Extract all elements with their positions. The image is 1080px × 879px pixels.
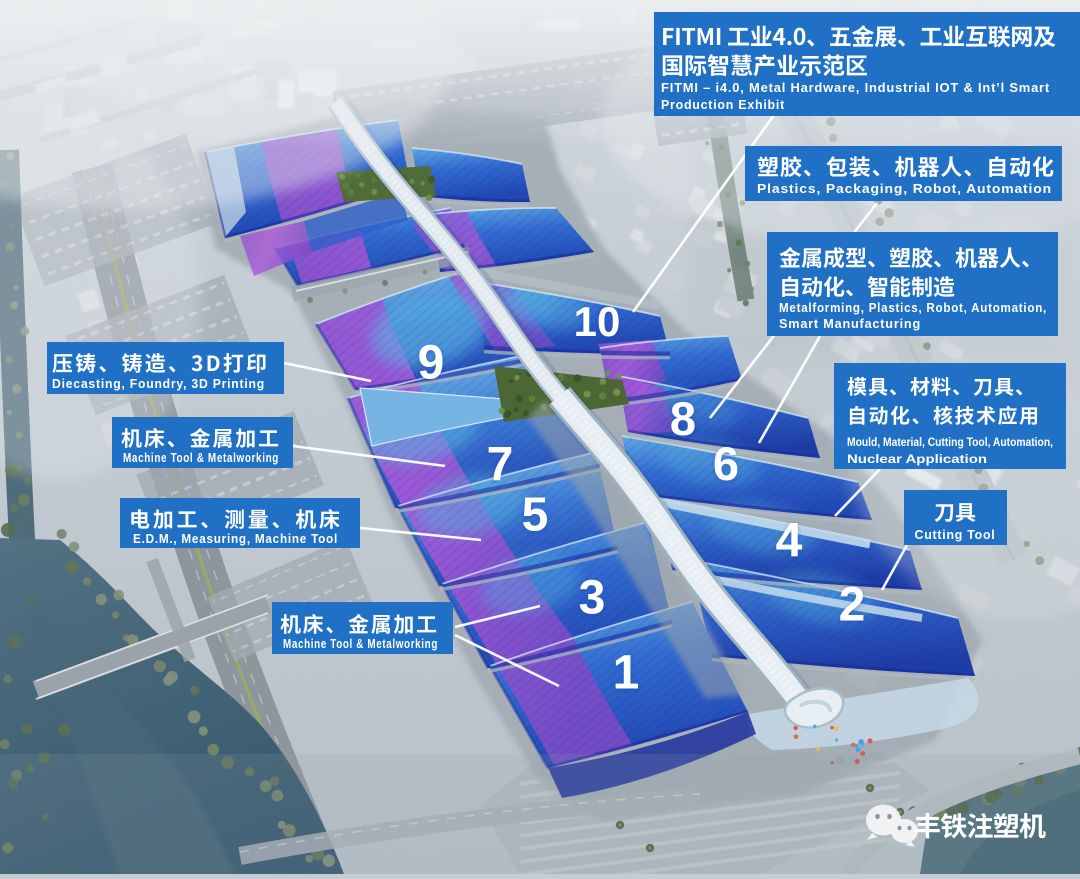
svg-text:FITMI – i4.0, Metal Hardware,: FITMI – i4.0, Metal Hardware, Industrial… (661, 80, 1050, 95)
svg-text:Smart Manufacturing: Smart Manufacturing (779, 317, 921, 331)
svg-text:1: 1 (613, 646, 640, 699)
svg-text:8: 8 (670, 392, 696, 445)
svg-text:Diecasting, Foundry, 3D Printi: Diecasting, Foundry, 3D Printing (52, 377, 265, 391)
svg-text:Nuclear Application: Nuclear Application (847, 454, 987, 466)
svg-text:Mould, Material, Cutting Tool,: Mould, Material, Cutting Tool, Automatio… (847, 437, 1053, 449)
svg-text:4: 4 (776, 514, 803, 567)
svg-text:2: 2 (839, 578, 866, 631)
svg-text:Cutting Tool: Cutting Tool (915, 527, 996, 542)
svg-text:Machine Tool & Metalworking: Machine Tool & Metalworking (283, 637, 438, 651)
svg-text:E.D.M., Measuring, Machine Too: E.D.M., Measuring, Machine Tool (133, 532, 338, 546)
svg-text:Plastics, Packaging, Robot, Au: Plastics, Packaging, Robot, Automation (757, 181, 1052, 196)
svg-text:Metalforming, Plastics, Robot,: Metalforming, Plastics, Robot, Automatio… (779, 301, 1047, 315)
svg-text:Production Exhibit: Production Exhibit (661, 97, 785, 112)
svg-text:Machine Tool & Metalworking: Machine Tool & Metalworking (123, 451, 279, 465)
svg-text:7: 7 (487, 438, 514, 491)
svg-text:9: 9 (418, 336, 445, 389)
svg-text:10: 10 (574, 298, 621, 345)
svg-text:3: 3 (579, 571, 606, 624)
svg-text:5: 5 (522, 488, 549, 541)
svg-text:6: 6 (713, 437, 739, 490)
